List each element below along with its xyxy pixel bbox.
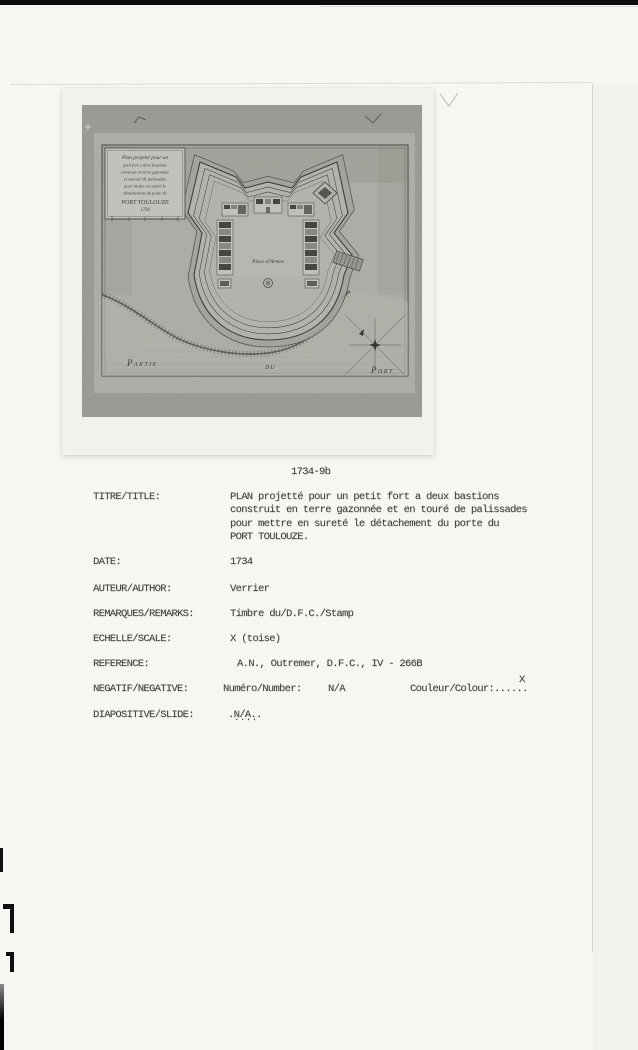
film-edge-line — [320, 6, 638, 7]
pencil-check-mark — [438, 90, 468, 110]
field-label-date: DATE: — [93, 556, 121, 568]
slide-under-dots: .... — [234, 712, 258, 724]
colour-label-text: Couleur/Colour: — [410, 683, 494, 695]
field-label-remarks: REMARQUES/REMARKS: — [93, 608, 194, 620]
title-line: PORT TOULOUZE. — [230, 531, 308, 543]
field-value-date: 1734 — [230, 556, 252, 568]
card-top-edge — [10, 82, 593, 85]
negative-number-value: N/A — [328, 683, 345, 695]
field-value-scale: X (toise) — [230, 633, 280, 645]
title-line: construit en terre gazonnée et en touré … — [230, 504, 527, 516]
fort-plan-photo: Place d'Armes Plan projetté pour un peti… — [82, 105, 422, 417]
negative-number-label: Numéro/Number: — [223, 683, 301, 695]
field-label-reference: REFERENCE: — [93, 658, 149, 670]
card-right-edge — [592, 84, 593, 952]
title-line: pour mettre en sureté le détachement du … — [230, 518, 499, 530]
negative-colour-mark: X — [519, 674, 525, 686]
film-mark — [0, 984, 4, 1050]
field-label-scale: ECHELLE/SCALE: — [93, 633, 171, 645]
field-label-negative: NEGATIF/NEGATIVE: — [93, 683, 188, 695]
photo-grain — [82, 105, 422, 417]
title-line: PLAN projetté pour un petit fort a deux … — [230, 491, 499, 503]
film-mark — [0, 848, 3, 872]
field-label-slide: DIAPOSITIVE/SLIDE: — [93, 709, 194, 721]
card-right-margin — [593, 84, 638, 1050]
field-label-author: AUTEUR/AUTHOR: — [93, 583, 171, 595]
scanned-catalog-page: Place d'Armes Plan projetté pour un peti… — [0, 0, 638, 1050]
field-value-reference: A.N., Outremer, D.F.C., IV - 266B — [237, 658, 422, 670]
film-mark — [10, 952, 14, 972]
field-value-author: Verrier — [230, 583, 269, 595]
field-value-remarks: Timbre du/D.F.C./Stamp — [230, 608, 353, 620]
film-edge-bar — [0, 0, 638, 5]
negative-colour-label: Couleur/Colour:...... — [410, 683, 528, 695]
field-label-title: TITRE/TITLE: — [93, 491, 160, 503]
photo-number: 1734-9b — [291, 466, 330, 478]
film-mark — [10, 904, 14, 933]
